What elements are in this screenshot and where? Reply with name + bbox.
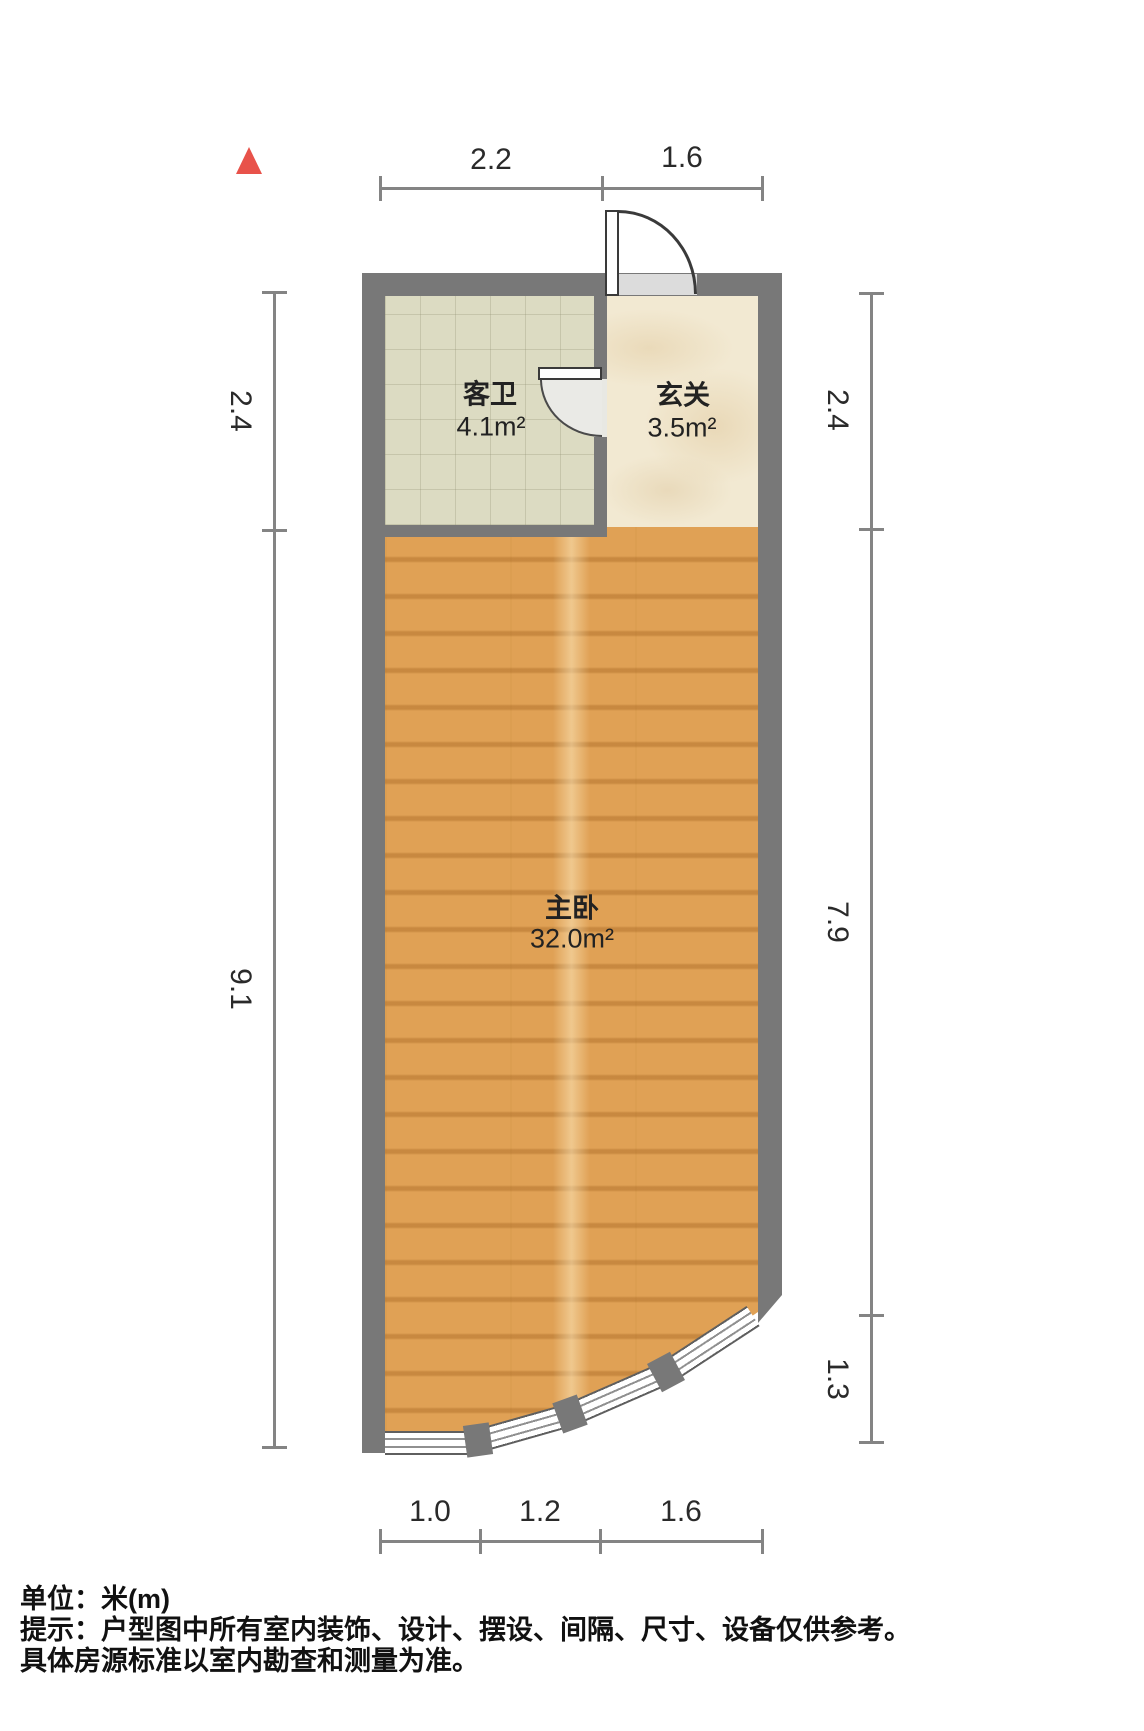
hallway-name: 玄关 (656, 374, 710, 413)
wall-left (362, 273, 385, 1453)
wall-bathroom-bottom (385, 525, 607, 537)
bathroom-name: 客卫 (463, 373, 517, 412)
dim-tick (379, 1529, 382, 1554)
entry-door-swing-icon (618, 210, 697, 294)
footer-notes: 单位：米(m) 提示：户型图中所有室内装饰、设计、摆设、间隔、尺寸、设备仅供参考… (20, 1584, 911, 1677)
dim-right-1: 2.4 (820, 389, 854, 431)
wall-top (362, 273, 782, 296)
bathroom-door-leaf (538, 367, 602, 380)
dim-bottom-1: 1.0 (409, 1495, 451, 1529)
dim-line-right (870, 293, 873, 1443)
window-mullion (463, 1422, 493, 1457)
entry-door-leaf (605, 210, 619, 296)
dim-tick (761, 1529, 764, 1554)
dim-line-left (273, 292, 276, 1448)
dim-tick (761, 176, 764, 201)
dim-tick (262, 529, 287, 532)
dim-left-1: 2.4 (223, 390, 257, 432)
wall-divider-lower (594, 437, 607, 537)
footer-disclaimer-line2: 具体房源标准以室内勘查和测量为准。 (20, 1646, 911, 1677)
dim-left-2: 9.1 (223, 968, 257, 1010)
bedroom-name: 主卧 (545, 887, 599, 926)
dim-tick (479, 1529, 482, 1554)
hallway-area: 3.5m² (647, 413, 716, 444)
bathroom-area: 4.1m² (456, 412, 525, 443)
dim-tick (262, 1446, 287, 1449)
dim-tick (859, 1441, 884, 1444)
footer-unit-note: 单位：米(m) (20, 1584, 911, 1615)
dim-tick (599, 1529, 602, 1554)
bedroom-area: 32.0m² (530, 924, 614, 955)
north-arrow-icon (236, 147, 262, 174)
footer-disclaimer-line1: 提示：户型图中所有室内装饰、设计、摆设、间隔、尺寸、设备仅供参考。 (20, 1615, 911, 1646)
dim-tick (262, 291, 287, 294)
dim-line-top (380, 187, 763, 190)
dim-right-3: 1.3 (820, 1358, 854, 1400)
dim-tick (859, 292, 884, 295)
floor-plan: 客卫 4.1m² 玄关 3.5m² 主卧 32.0m² 2.2 1.6 1.0 … (0, 0, 1144, 1731)
dim-top-1: 2.2 (470, 143, 512, 177)
wall-right (758, 273, 782, 1330)
dim-tick (379, 176, 382, 201)
bedroom-floor (385, 527, 758, 1444)
dim-tick (601, 176, 604, 201)
dim-tick (859, 1314, 884, 1317)
dim-tick (859, 528, 884, 531)
dim-bottom-2: 1.2 (519, 1495, 561, 1529)
dim-bottom-3: 1.6 (660, 1495, 702, 1529)
dim-line-bottom (380, 1540, 763, 1543)
dim-right-2: 7.9 (820, 901, 854, 943)
dim-top-2: 1.6 (661, 141, 703, 175)
